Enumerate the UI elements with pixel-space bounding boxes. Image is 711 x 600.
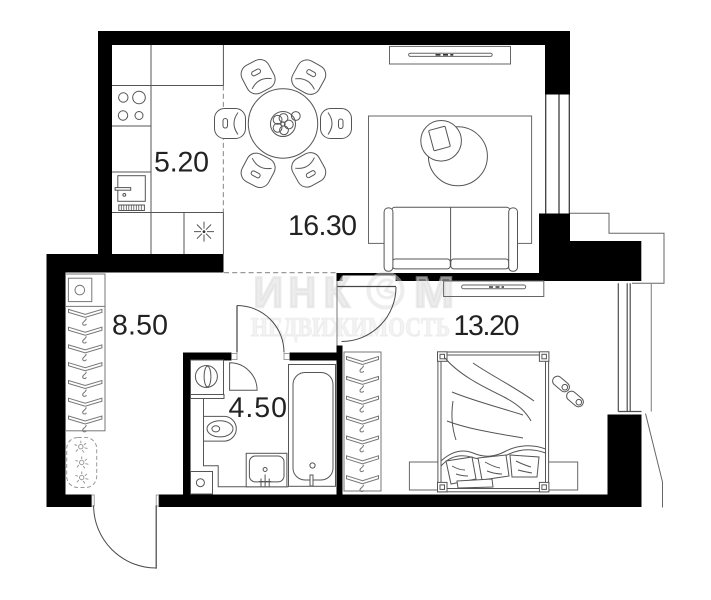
svg-text:8.50: 8.50: [112, 310, 168, 342]
svg-text:Н: Н: [289, 269, 317, 317]
svg-text:4.50: 4.50: [229, 392, 288, 424]
svg-text:16.30: 16.30: [288, 210, 357, 242]
svg-text:13.20: 13.20: [454, 310, 520, 342]
svg-text:М: М: [414, 269, 454, 317]
svg-text:5.20: 5.20: [154, 147, 209, 179]
svg-text:НЕДВИЖИМОСТЬ: НЕДВИЖИМОСТЬ: [251, 312, 450, 342]
